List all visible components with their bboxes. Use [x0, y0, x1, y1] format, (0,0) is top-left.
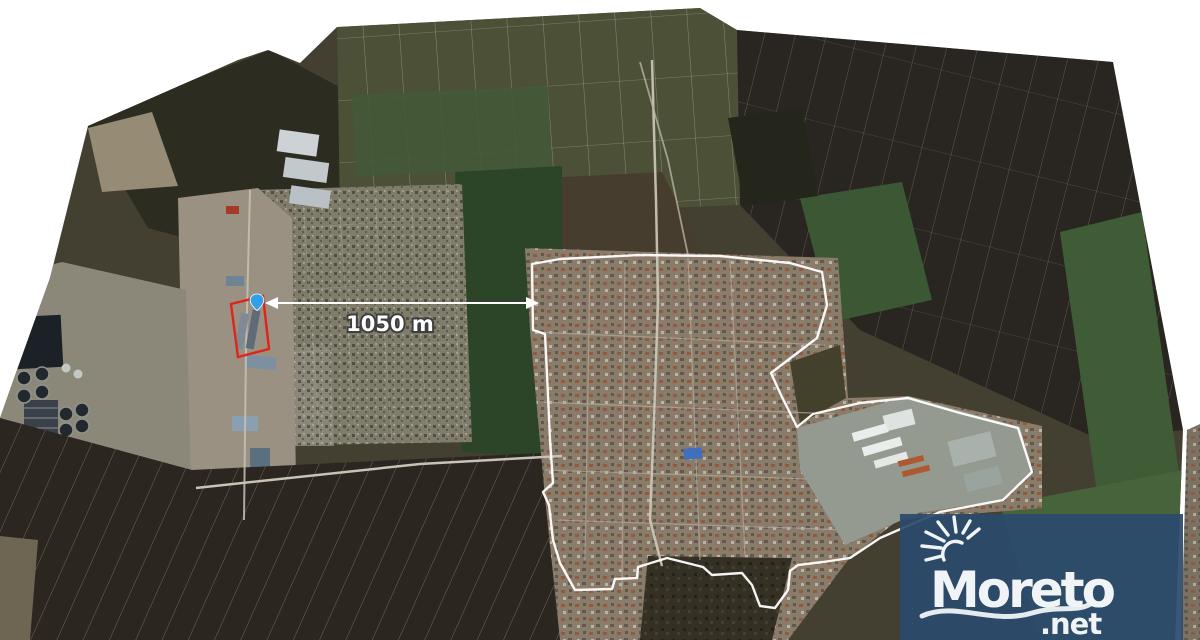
- green-field-north: [352, 86, 552, 176]
- map-screenshot: 1050 m Moreto .net: [0, 0, 1200, 640]
- satellite-map: 1050 m Moreto .net: [0, 0, 1200, 640]
- watermark-logo: Moreto .net: [900, 514, 1183, 640]
- photo-strip-southeast: [1181, 424, 1200, 640]
- distance-label: 1050 m: [346, 312, 434, 336]
- blue-roof-building: [684, 447, 703, 460]
- scrub-south-texture: [640, 556, 792, 640]
- tree-grove: [728, 108, 818, 206]
- watermark-tld: .net: [1040, 607, 1102, 640]
